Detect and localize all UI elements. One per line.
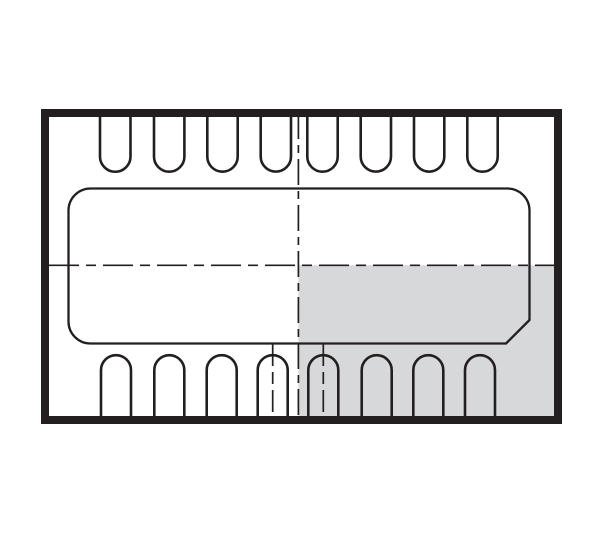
pin-top-4 <box>261 113 291 172</box>
pin-top-2 <box>154 113 184 172</box>
package-outline-svg <box>0 0 600 533</box>
pin-bottom-2 <box>154 355 184 420</box>
pin-bottom-1 <box>101 355 131 420</box>
pin-bottom-3 <box>207 355 237 420</box>
pin-top-3 <box>207 113 237 172</box>
pin-top-5 <box>307 113 337 172</box>
package-outline-drawing <box>0 0 600 533</box>
pin-top-7 <box>414 113 444 172</box>
pin-top-6 <box>361 113 391 172</box>
pin-top-1 <box>100 113 131 172</box>
pin-top-8 <box>467 113 497 172</box>
shaded-pin1-quadrant <box>298 265 554 416</box>
